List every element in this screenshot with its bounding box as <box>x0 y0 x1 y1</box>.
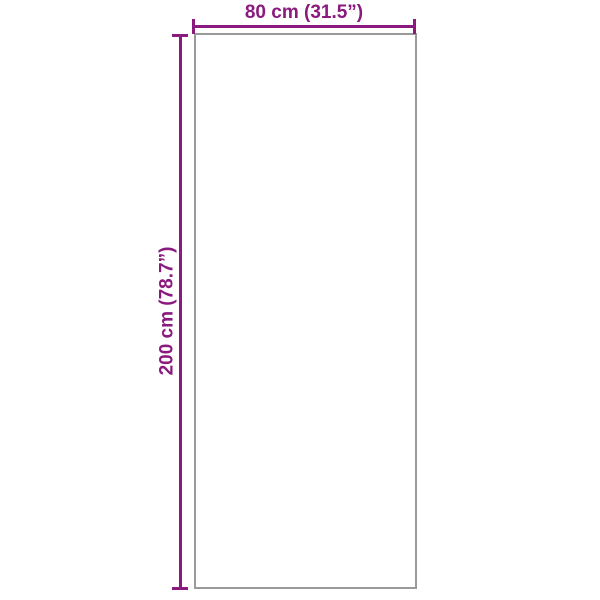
height-dimension-line <box>179 34 182 590</box>
product-outline-rectangle <box>194 33 417 589</box>
width-dimension-line <box>192 25 416 28</box>
width-dimension-label: 80 cm (31.5”) <box>192 1 416 25</box>
height-dimension-label-wrap: 200 cm (78.7”) <box>152 33 182 589</box>
height-dimension-tick-bottom <box>172 587 188 590</box>
width-dimension-tick-right <box>413 19 416 34</box>
height-dimension-label: 200 cm (78.7”) <box>156 247 178 376</box>
dimension-diagram: 80 cm (31.5”) 200 cm (78.7”) <box>0 0 600 600</box>
width-dimension-tick-left <box>192 19 195 34</box>
height-dimension-tick-top <box>172 34 188 37</box>
